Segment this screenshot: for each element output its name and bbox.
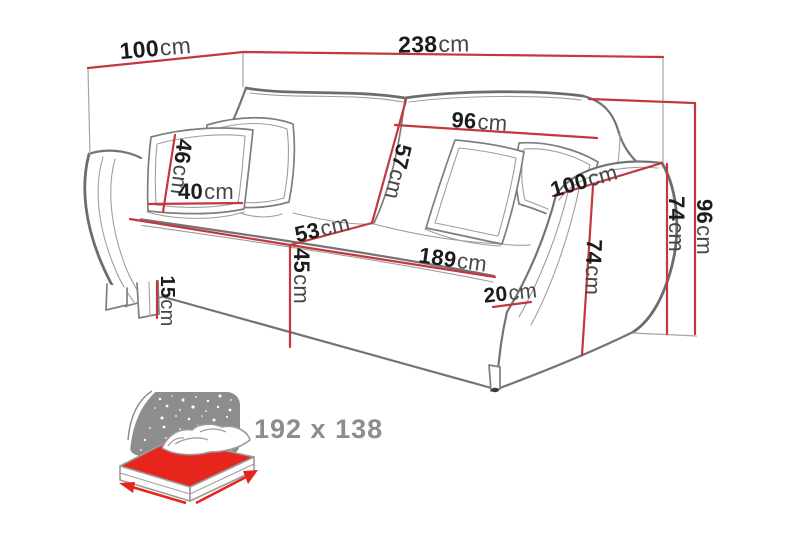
diagram-canvas: 100cm 238cm 96cm 57cm 46cm 40cm 53cm 45c… xyxy=(0,0,800,533)
label-leg-height: 15cm xyxy=(156,275,178,326)
label-seat-height: 45cm xyxy=(289,248,314,304)
sofa-dimension-diagram: 100cm 238cm 96cm 57cm 46cm 40cm 53cm 45c… xyxy=(0,0,800,533)
floor-baseline xyxy=(633,333,697,336)
label-backrest-cushion-width: 96cm xyxy=(451,107,509,136)
front-right-leg-tip xyxy=(491,388,499,392)
label-armrest-height-front: 74cm xyxy=(580,239,607,296)
sleeping-function-icon xyxy=(119,388,258,503)
label-pillow-width: 40cm xyxy=(178,179,234,204)
sleeping-area-size: 192 x 138 xyxy=(254,414,383,444)
label-total-height: 96cm xyxy=(692,199,717,255)
label-width-total: 238cm xyxy=(398,30,470,57)
label-armrest-height-outer: 74cm xyxy=(664,196,689,252)
